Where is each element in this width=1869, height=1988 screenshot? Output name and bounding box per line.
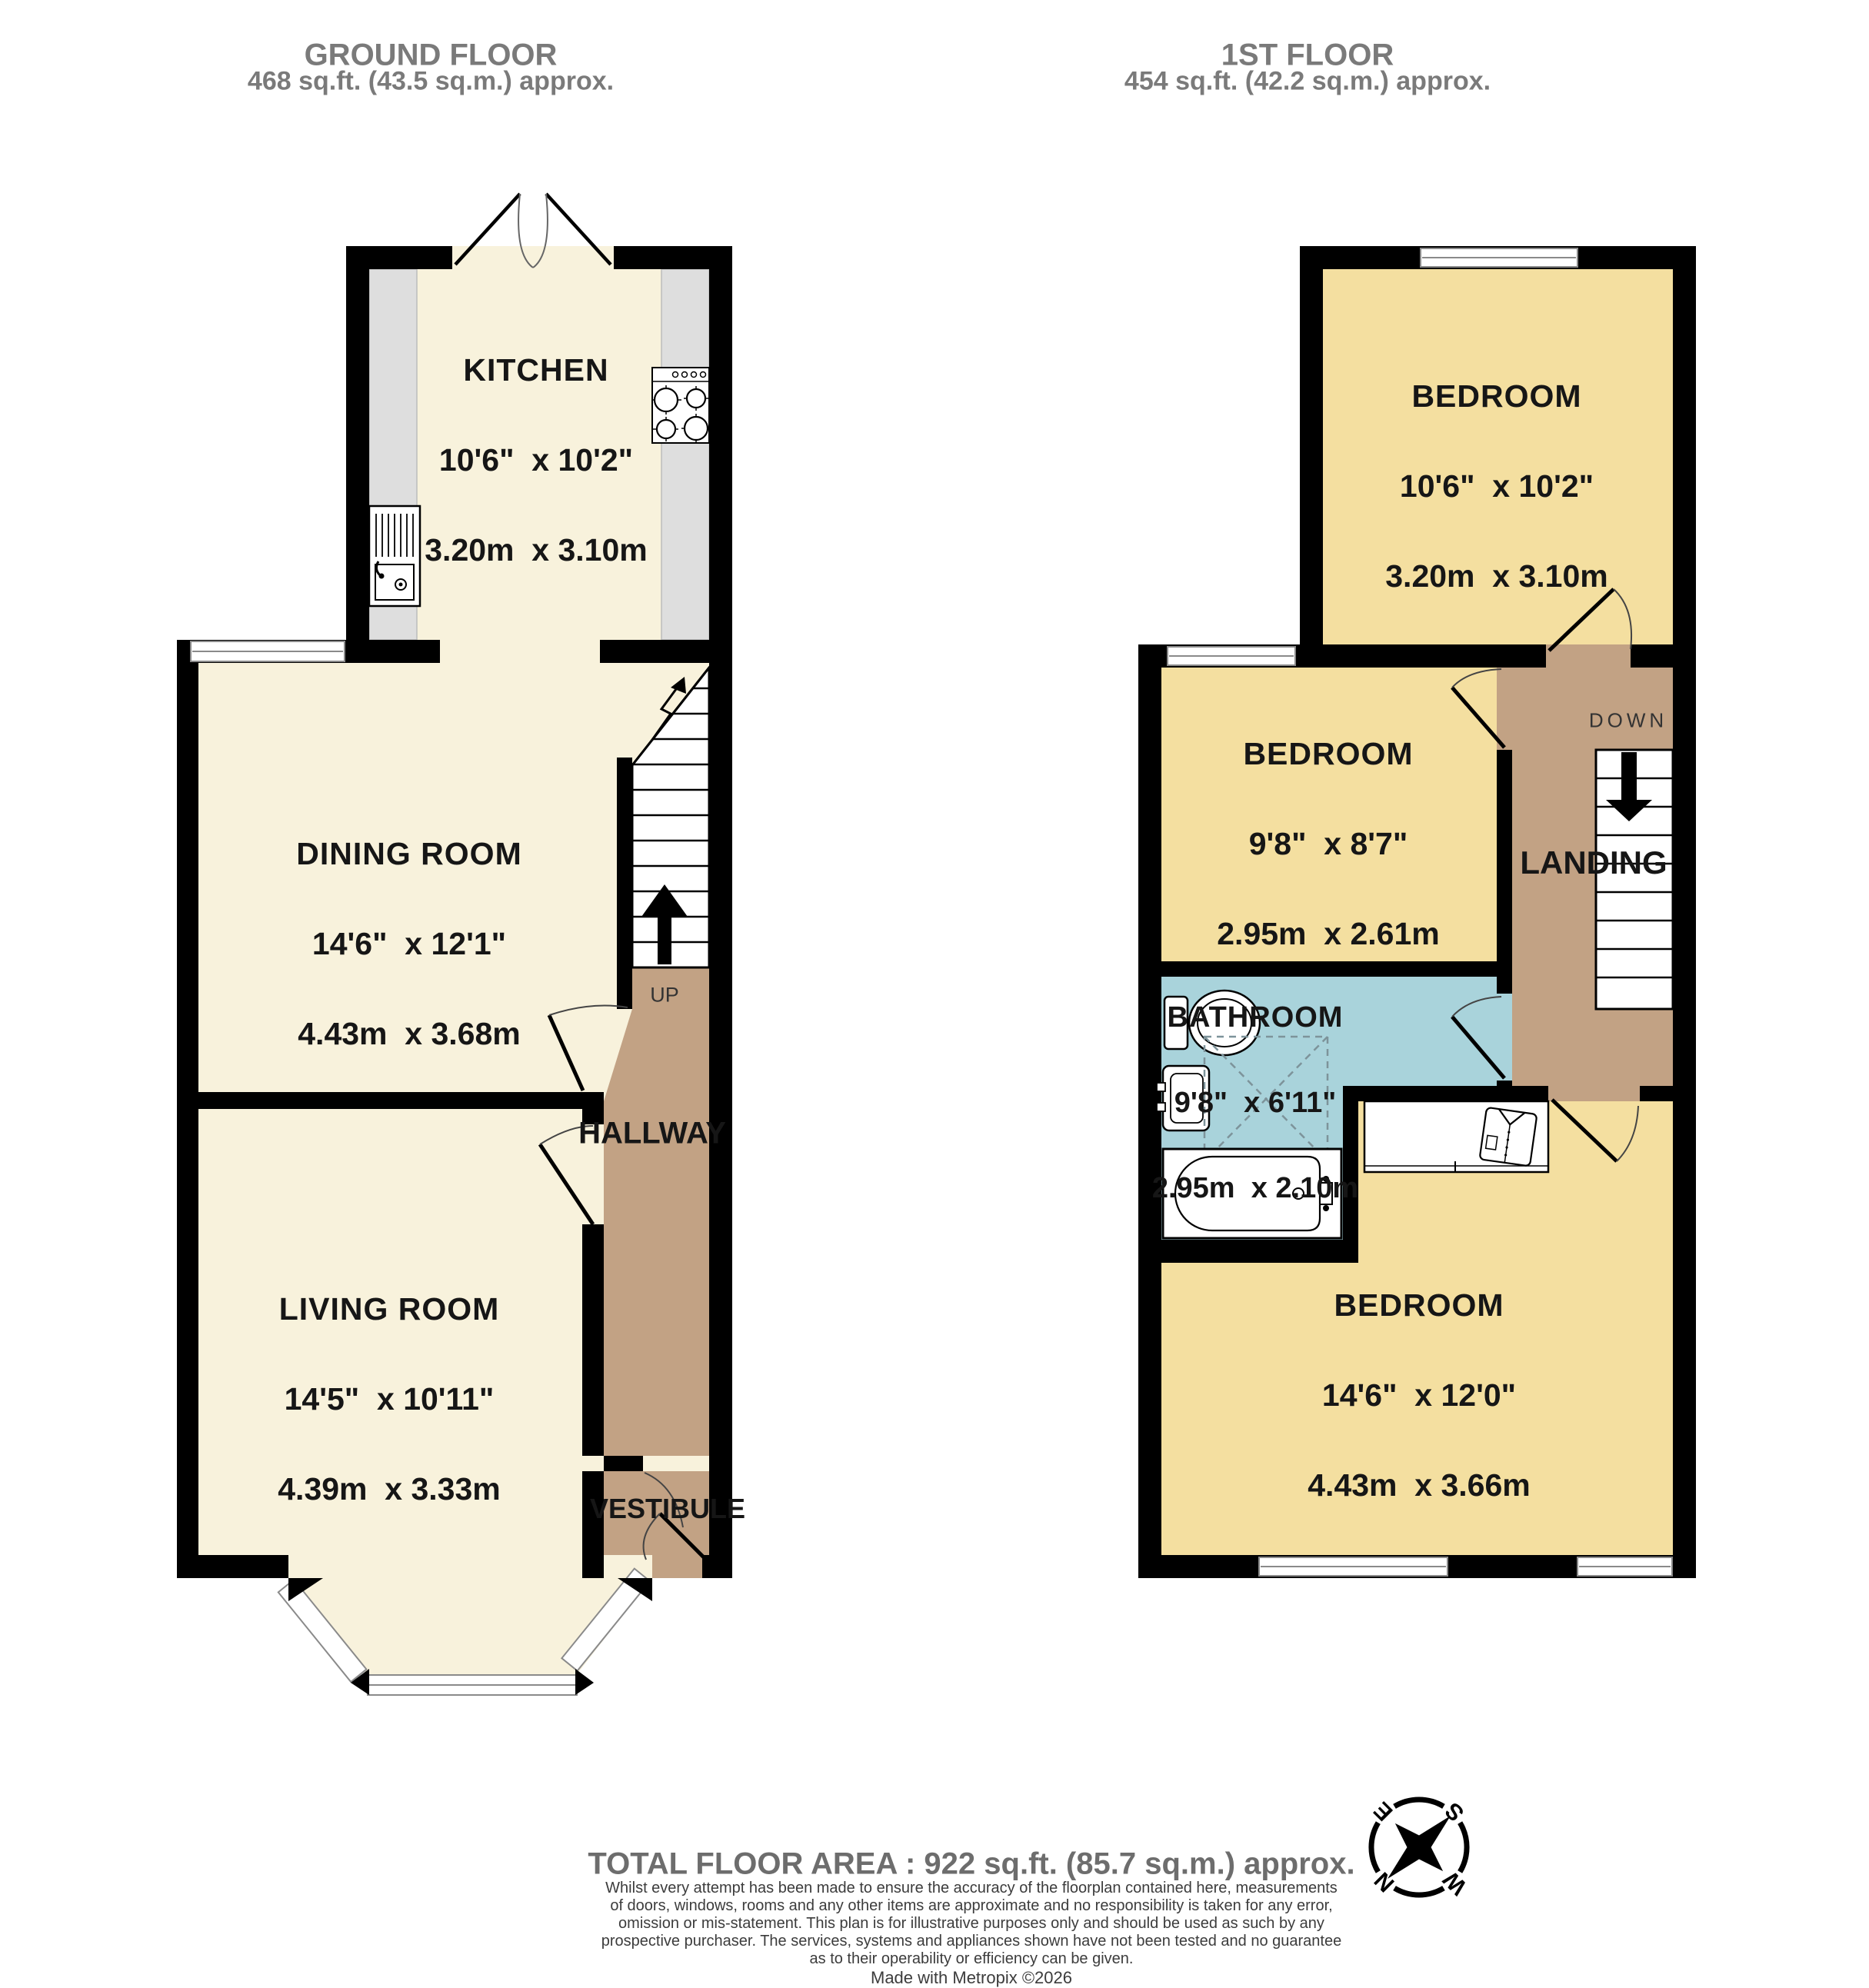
vestibule-label: VESTIBULE [590, 1493, 745, 1525]
disclaimer-block: Whilst every attempt has been made to en… [601, 1880, 1341, 1988]
kitchen-sink-icon [369, 506, 420, 606]
kitchen-counter-right [661, 269, 709, 640]
bedroom1-name: BEDROOM [1385, 381, 1607, 411]
disclaimer-line: prospective purchaser. The services, sys… [601, 1933, 1341, 1950]
wardrobe-icon [1364, 1101, 1548, 1172]
hallway-label: HALLWAY [578, 1117, 726, 1151]
landing-label: LANDING [1520, 844, 1667, 881]
total-floor-area: TOTAL FLOOR AREA : 922 sq.ft. (85.7 sq.m… [588, 1847, 1354, 1882]
kitchen-metric: 3.20m x 3.10m [425, 535, 647, 565]
bathroom-metric: 2.95m x 2.10m [1152, 1174, 1358, 1203]
bedroom1-doorway [1546, 644, 1631, 668]
compass-w: W [1438, 1866, 1472, 1900]
kitchen-name: KITCHEN [425, 355, 647, 385]
stove-icon [651, 368, 710, 443]
metropix-credit: Made with Metropix ©2026 [601, 1968, 1341, 1988]
bedroom2-metric: 2.95m x 2.61m [1217, 919, 1439, 949]
living-name: LIVING ROOM [278, 1294, 500, 1324]
bedroom1-label: BEDROOM 10'6" x 10'2" 3.20m x 3.10m [1385, 321, 1607, 621]
compass-rose-icon: N E S W [1334, 1761, 1508, 1934]
disclaimer-line: as to their operability or efficiency ca… [601, 1950, 1341, 1968]
disclaimer-line: of doors, windows, rooms and any other i… [601, 1897, 1341, 1915]
dining-metric: 4.43m x 3.68m [296, 1019, 521, 1049]
bedroom3-label: BEDROOM 14'6" x 12'0" 4.43m x 3.66m [1308, 1230, 1530, 1530]
bedroom3-imperial: 14'6" x 12'0" [1308, 1380, 1530, 1410]
kitchen-imperial: 10'6" x 10'2" [425, 445, 647, 475]
living-imperial: 14'5" x 10'11" [278, 1384, 500, 1414]
bathroom-imperial: 9'8" x 6'11" [1152, 1089, 1358, 1117]
kitchen-label: KITCHEN 10'6" x 10'2" 3.20m x 3.10m [425, 295, 647, 595]
stairs-up-label: UP [650, 984, 679, 1007]
stairs-down-label: DOWN [1589, 709, 1667, 733]
ground-floor-area: 468 sq.ft. (43.5 sq.m.) approx. [248, 67, 614, 97]
bedroom3-metric: 4.43m x 3.66m [1308, 1470, 1530, 1500]
bedroom2-imperial: 9'8" x 8'7" [1217, 829, 1439, 859]
front-door-gap [652, 1555, 702, 1578]
bedroom3-doorway [1548, 1086, 1640, 1101]
bedroom2-name: BEDROOM [1217, 739, 1439, 769]
compass-e: E [1369, 1797, 1398, 1825]
bedroom1-imperial: 10'6" x 10'2" [1385, 471, 1607, 501]
bathroom-label: BATHROOM 9'8" x 6'11" 2.95m x 2.10m [1152, 947, 1358, 1231]
bedroom1-metric: 3.20m x 3.10m [1385, 561, 1607, 591]
bathroom-name: BATHROOM [1152, 1004, 1358, 1032]
disclaimer-line: omission or mis-statement. This plan is … [601, 1915, 1341, 1933]
bathroom-doorway [1497, 994, 1512, 1081]
bedroom3-name: BEDROOM [1308, 1290, 1530, 1320]
bedroom2-label: BEDROOM 9'8" x 8'7" 2.95m x 2.61m [1217, 679, 1439, 979]
dining-imperial: 14'6" x 12'1" [296, 929, 521, 959]
first-floor-area: 454 sq.ft. (42.2 sq.m.) approx. [1124, 67, 1491, 97]
shirt-icon [1480, 1107, 1538, 1167]
disclaimer-line: Whilst every attempt has been made to en… [601, 1880, 1341, 1897]
dining-name: DINING ROOM [296, 839, 521, 869]
floorplan-drawing: N E S W [0, 0, 1869, 1969]
floorplan-page: { "headers": { "ground": { "title": "GRO… [0, 0, 1869, 1969]
living-room-label: LIVING ROOM 14'5" x 10'11" 4.39m x 3.33m [278, 1234, 500, 1534]
bedroom2-doorway [1497, 668, 1512, 750]
ground-floor-windows [191, 641, 345, 661]
living-metric: 4.39m x 3.33m [278, 1474, 500, 1504]
dining-room-label: DINING ROOM 14'6" x 12'1" 4.43m x 3.68m [296, 779, 521, 1079]
